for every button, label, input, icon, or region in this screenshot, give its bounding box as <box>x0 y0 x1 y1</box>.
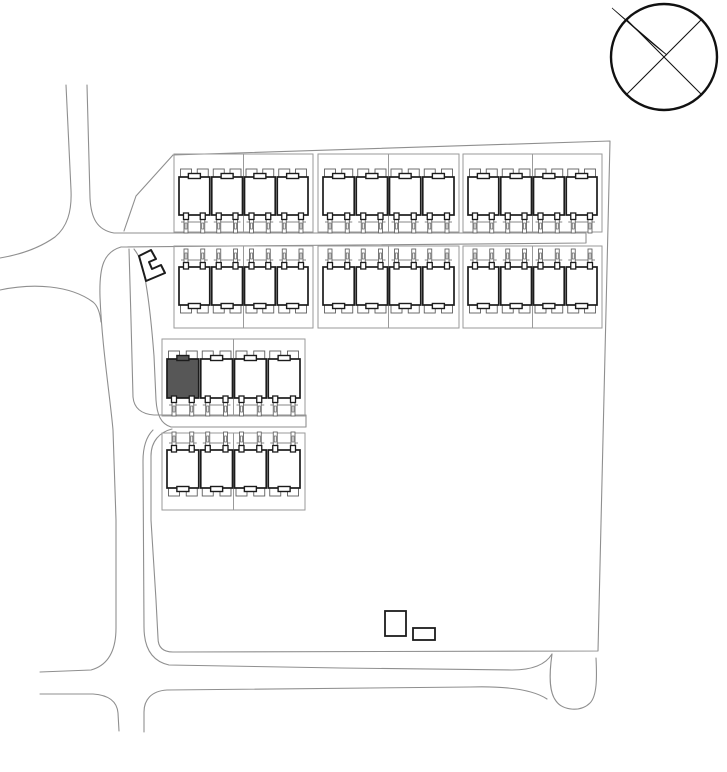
unit-roof-notch <box>188 304 200 309</box>
north-road-left-edge <box>0 85 71 258</box>
building-unit[interactable] <box>268 359 300 398</box>
unit-door-leaf <box>202 223 204 229</box>
unit-door-leaf <box>474 223 476 229</box>
unit-door-leaf <box>572 223 574 229</box>
unit-door-leaf <box>362 253 364 259</box>
south-road-bottom-edge-east <box>144 687 547 732</box>
building-unit[interactable] <box>423 267 454 305</box>
unit-entrance-step <box>172 446 177 453</box>
unit-door-leaf <box>283 223 285 229</box>
building-unit[interactable] <box>356 177 387 215</box>
unit-roof-notch <box>278 356 290 361</box>
unit-entrance-step <box>411 263 416 270</box>
unit-roof-notch <box>211 487 223 492</box>
unit-entrance-step <box>361 213 366 220</box>
unit-entrance-step <box>205 446 210 453</box>
unit-entrance-step <box>505 263 510 270</box>
unit-roof-notch <box>366 174 378 179</box>
unit-door-leaf <box>225 406 227 412</box>
unit-door-leaf <box>329 253 331 259</box>
unit-entrance-step <box>239 446 244 453</box>
unit-entrance-step <box>394 213 399 220</box>
unit-roof-notch <box>221 304 233 309</box>
unit-door-leaf <box>202 253 204 259</box>
unit-entrance-step <box>538 263 543 270</box>
unit-entrance-step <box>328 263 333 270</box>
building-unit[interactable] <box>390 267 421 305</box>
unit-door-leaf <box>429 223 431 229</box>
block-north-row-middle <box>318 154 459 233</box>
site-plan-svg <box>0 0 727 772</box>
building-unit[interactable] <box>245 267 276 305</box>
compass-needle <box>612 8 667 55</box>
unit-door-leaf <box>540 253 542 259</box>
unit-entrance-step <box>266 263 271 270</box>
unit-entrance-step <box>394 263 399 270</box>
building-unit[interactable] <box>212 267 243 305</box>
unit-entrance-step <box>216 213 221 220</box>
unit-entrance-step <box>216 263 221 270</box>
unit-entrance-step <box>233 213 238 220</box>
unit-door-leaf <box>589 223 591 229</box>
unit-entrance-step <box>184 263 189 270</box>
unit-door-leaf <box>274 406 276 412</box>
unit-door-leaf <box>413 253 415 259</box>
building-unit[interactable] <box>501 267 532 305</box>
unit-entrance-step <box>172 396 177 403</box>
unit-door-leaf <box>507 223 509 229</box>
unit-entrance-step <box>233 263 238 270</box>
unit-door-leaf <box>524 253 526 259</box>
building-unit[interactable] <box>423 177 454 215</box>
building-unit[interactable] <box>212 177 243 215</box>
unit-door-leaf <box>346 223 348 229</box>
unit-roof-notch <box>510 174 522 179</box>
unit-entrance-step <box>378 263 383 270</box>
unit-roof-notch <box>177 356 189 361</box>
unit-entrance-step <box>328 213 333 220</box>
unit-entrance-step <box>249 263 254 270</box>
unit-door-leaf <box>283 253 285 259</box>
building-unit[interactable] <box>501 177 532 215</box>
central-road-bottom-edge <box>121 233 586 247</box>
unit-door-leaf <box>413 223 415 229</box>
unit-entrance-step <box>291 446 296 453</box>
block-west-row-lower <box>162 432 305 510</box>
unit-entrance-step <box>588 213 593 220</box>
unit-door-leaf <box>185 223 187 229</box>
unit-entrance-step <box>473 263 478 270</box>
unit-entrance-step <box>522 213 527 220</box>
west-lane-left-edge <box>40 247 121 672</box>
building-unit[interactable] <box>566 177 597 215</box>
unit-door-leaf <box>225 436 227 442</box>
site-plan <box>0 0 727 772</box>
block-second-row-left <box>174 246 313 328</box>
building-unit[interactable] <box>277 267 308 305</box>
outbuilding-small <box>413 628 435 640</box>
unit-door-leaf <box>300 253 302 259</box>
building-unit[interactable] <box>179 267 210 305</box>
unit-roof-notch <box>254 304 266 309</box>
unit-door-leaf <box>292 406 294 412</box>
unit-entrance-step <box>200 213 205 220</box>
unit-roof-notch <box>399 304 411 309</box>
outbuilding-large <box>385 611 406 636</box>
building-unit[interactable] <box>323 177 354 215</box>
unit-entrance-step <box>189 446 194 453</box>
unit-door-leaf <box>267 223 269 229</box>
unit-roof-notch <box>278 487 290 492</box>
unit-door-leaf <box>362 223 364 229</box>
unit-roof-notch <box>221 174 233 179</box>
unit-entrance-step <box>282 263 287 270</box>
building-unit[interactable] <box>566 267 597 305</box>
unit-roof-notch <box>287 304 299 309</box>
unit-roof-notch <box>366 304 378 309</box>
unit-door-leaf <box>491 223 493 229</box>
block-second-row-right <box>463 246 602 328</box>
unit-door-leaf <box>235 223 237 229</box>
southwest-branch-road <box>0 286 101 322</box>
unit-door-leaf <box>474 253 476 259</box>
unit-entrance-step <box>282 213 287 220</box>
unit-door-leaf <box>572 253 574 259</box>
unit-door-leaf <box>173 406 175 412</box>
unit-door-leaf <box>380 223 382 229</box>
unit-roof-notch <box>399 174 411 179</box>
unit-entrance-step <box>299 213 304 220</box>
unit-roof-notch <box>576 174 588 179</box>
block-north-row-left <box>174 154 313 233</box>
unit-door-leaf <box>524 223 526 229</box>
unit-door-leaf <box>589 253 591 259</box>
unit-door-leaf <box>346 253 348 259</box>
building-unit[interactable] <box>201 359 233 398</box>
unit-entrance-step <box>473 213 478 220</box>
unit-door-leaf <box>241 406 243 412</box>
unit-entrance-step <box>411 213 416 220</box>
unit-door-leaf <box>218 223 220 229</box>
unit-entrance-step <box>489 213 494 220</box>
unit-roof-notch <box>510 304 522 309</box>
unit-door-leaf <box>235 253 237 259</box>
unit-roof-notch <box>477 174 489 179</box>
unit-entrance-step <box>223 446 228 453</box>
unit-roof-notch <box>244 487 256 492</box>
unit-door-leaf <box>251 223 253 229</box>
unit-entrance-step <box>223 396 228 403</box>
unit-roof-notch <box>543 304 555 309</box>
unit-entrance-step <box>266 213 271 220</box>
utility-building <box>139 250 165 281</box>
unit-entrance-step <box>555 263 560 270</box>
unit-door-leaf <box>251 253 253 259</box>
unit-door-leaf <box>191 406 193 412</box>
building-unit[interactable] <box>534 177 565 215</box>
unit-door-leaf <box>258 406 260 412</box>
unit-entrance-step <box>239 396 244 403</box>
unit-entrance-step <box>427 263 432 270</box>
unit-entrance-step <box>257 446 262 453</box>
unit-entrance-step <box>249 213 254 220</box>
unit-roof-notch <box>576 304 588 309</box>
unit-entrance-step <box>571 213 576 220</box>
unit-door-leaf <box>556 223 558 229</box>
unit-door-leaf <box>396 223 398 229</box>
turning-head <box>550 654 596 709</box>
unit-door-leaf <box>191 436 193 442</box>
building-unit[interactable] <box>468 267 499 305</box>
unit-door-leaf <box>540 223 542 229</box>
unit-entrance-step <box>361 263 366 270</box>
south-road-bottom-edge-west <box>40 694 119 731</box>
unit-roof-notch <box>188 174 200 179</box>
unit-door-leaf <box>446 253 448 259</box>
unit-entrance-step <box>273 396 278 403</box>
unit-door-leaf <box>207 436 209 442</box>
unit-entrance-step <box>257 396 262 403</box>
unit-roof-notch <box>333 174 345 179</box>
building-unit[interactable] <box>245 177 276 215</box>
block-west-row-upper <box>162 339 305 416</box>
unit-door-leaf <box>274 436 276 442</box>
unit-entrance-step <box>189 396 194 403</box>
unit-entrance-step <box>299 263 304 270</box>
building-unit[interactable] <box>390 177 421 215</box>
unit-door-leaf <box>292 436 294 442</box>
unit-entrance-step <box>378 213 383 220</box>
unit-door-leaf <box>380 253 382 259</box>
unit-entrance-step <box>445 263 450 270</box>
unit-roof-notch <box>254 174 266 179</box>
building-unit[interactable] <box>323 267 354 305</box>
unit-door-leaf <box>267 253 269 259</box>
building-unit[interactable] <box>167 450 199 488</box>
unit-entrance-step <box>205 396 210 403</box>
unit-door-leaf <box>185 253 187 259</box>
unit-roof-notch <box>432 174 444 179</box>
unit-entrance-step <box>273 446 278 453</box>
unit-roof-notch <box>211 356 223 361</box>
block-second-row-middle <box>318 246 459 328</box>
unit-door-leaf <box>446 223 448 229</box>
unit-entrance-step <box>571 263 576 270</box>
site-boundary-northwest <box>124 155 173 231</box>
unit-entrance-step <box>522 263 527 270</box>
building-unit-selected[interactable] <box>167 359 199 398</box>
unit-door-leaf <box>207 406 209 412</box>
unit-door-leaf <box>429 253 431 259</box>
building-unit[interactable] <box>235 359 267 398</box>
unit-door-leaf <box>218 253 220 259</box>
unit-entrance-step <box>489 263 494 270</box>
unit-roof-notch <box>333 304 345 309</box>
unit-entrance-step <box>445 213 450 220</box>
unit-door-leaf <box>258 436 260 442</box>
unit-entrance-step <box>345 213 350 220</box>
unit-door-leaf <box>173 436 175 442</box>
building-unit[interactable] <box>534 267 565 305</box>
unit-entrance-step <box>555 213 560 220</box>
unit-entrance-step <box>345 263 350 270</box>
unit-roof-notch <box>543 174 555 179</box>
unit-entrance-step <box>427 213 432 220</box>
unit-roof-notch <box>244 356 256 361</box>
unit-roof-notch <box>432 304 444 309</box>
unit-door-leaf <box>396 253 398 259</box>
unit-entrance-step <box>505 213 510 220</box>
unit-roof-notch <box>477 304 489 309</box>
unit-door-leaf <box>556 253 558 259</box>
unit-door-leaf <box>241 436 243 442</box>
unit-roof-notch <box>287 174 299 179</box>
unit-entrance-step <box>184 213 189 220</box>
unit-entrance-step <box>588 263 593 270</box>
building-unit[interactable] <box>268 450 300 488</box>
unit-entrance-step <box>538 213 543 220</box>
compass-rose <box>611 4 717 110</box>
unit-door-leaf <box>491 253 493 259</box>
unit-entrance-step <box>200 263 205 270</box>
building-unit[interactable] <box>277 177 308 215</box>
unit-roof-notch <box>177 487 189 492</box>
block-north-row-right <box>463 154 602 233</box>
building-unit[interactable] <box>179 177 210 215</box>
unit-door-leaf <box>507 253 509 259</box>
unit-door-leaf <box>300 223 302 229</box>
unit-door-leaf <box>329 223 331 229</box>
building-unit[interactable] <box>468 177 499 215</box>
building-unit[interactable] <box>235 450 267 488</box>
building-unit[interactable] <box>201 450 233 488</box>
unit-entrance-step <box>291 396 296 403</box>
building-unit[interactable] <box>356 267 387 305</box>
